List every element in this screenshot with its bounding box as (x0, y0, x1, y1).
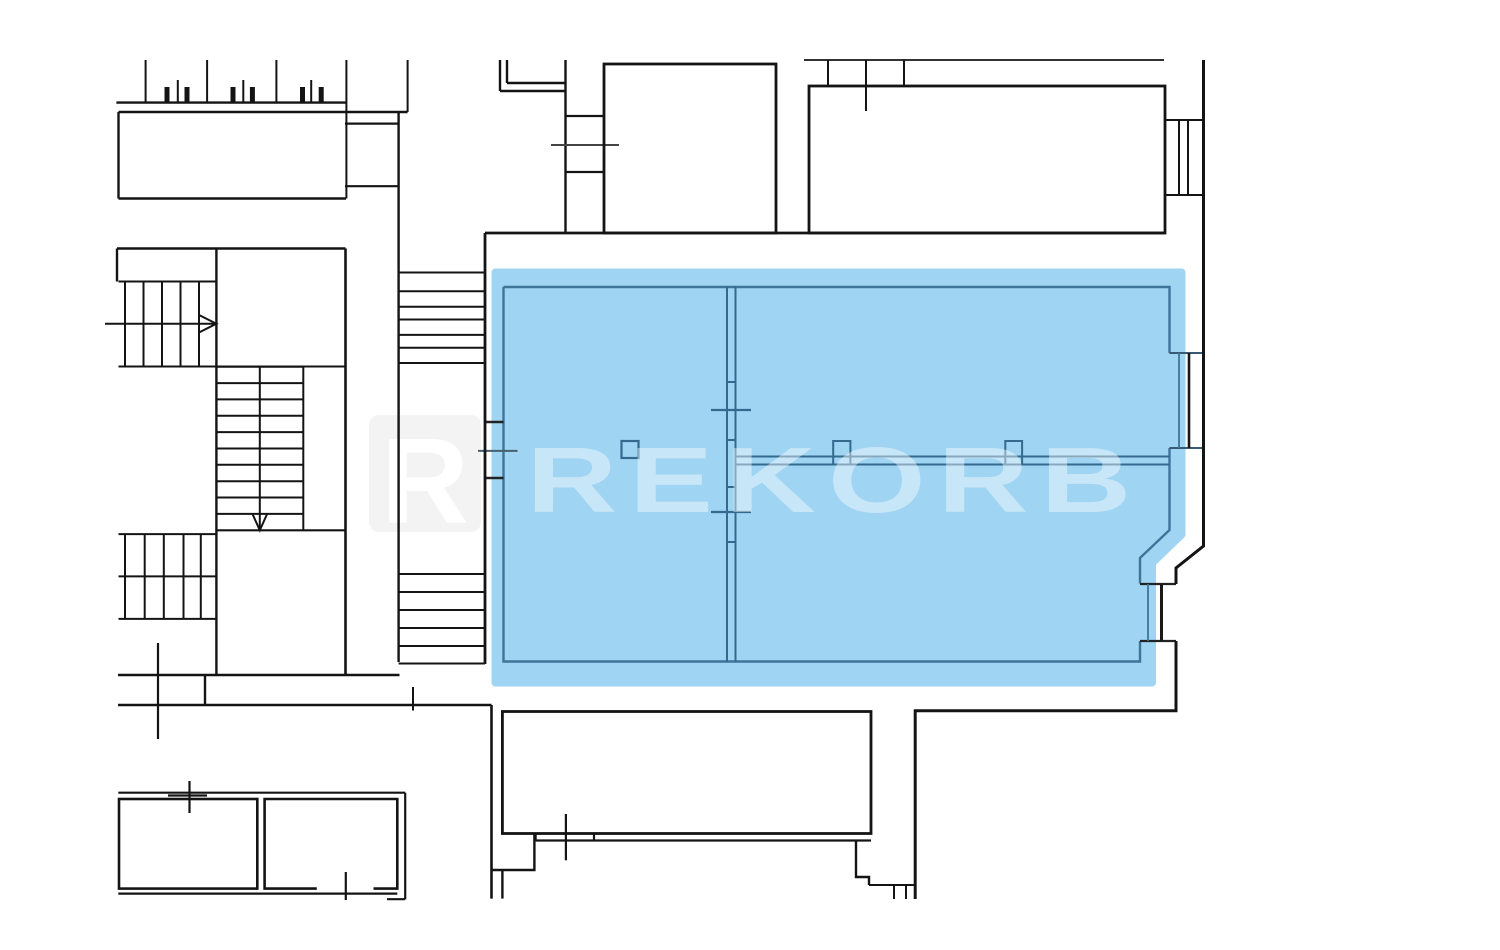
svg-text:R: R (381, 413, 469, 549)
svg-text:REKORB: REKORB (527, 429, 1144, 533)
